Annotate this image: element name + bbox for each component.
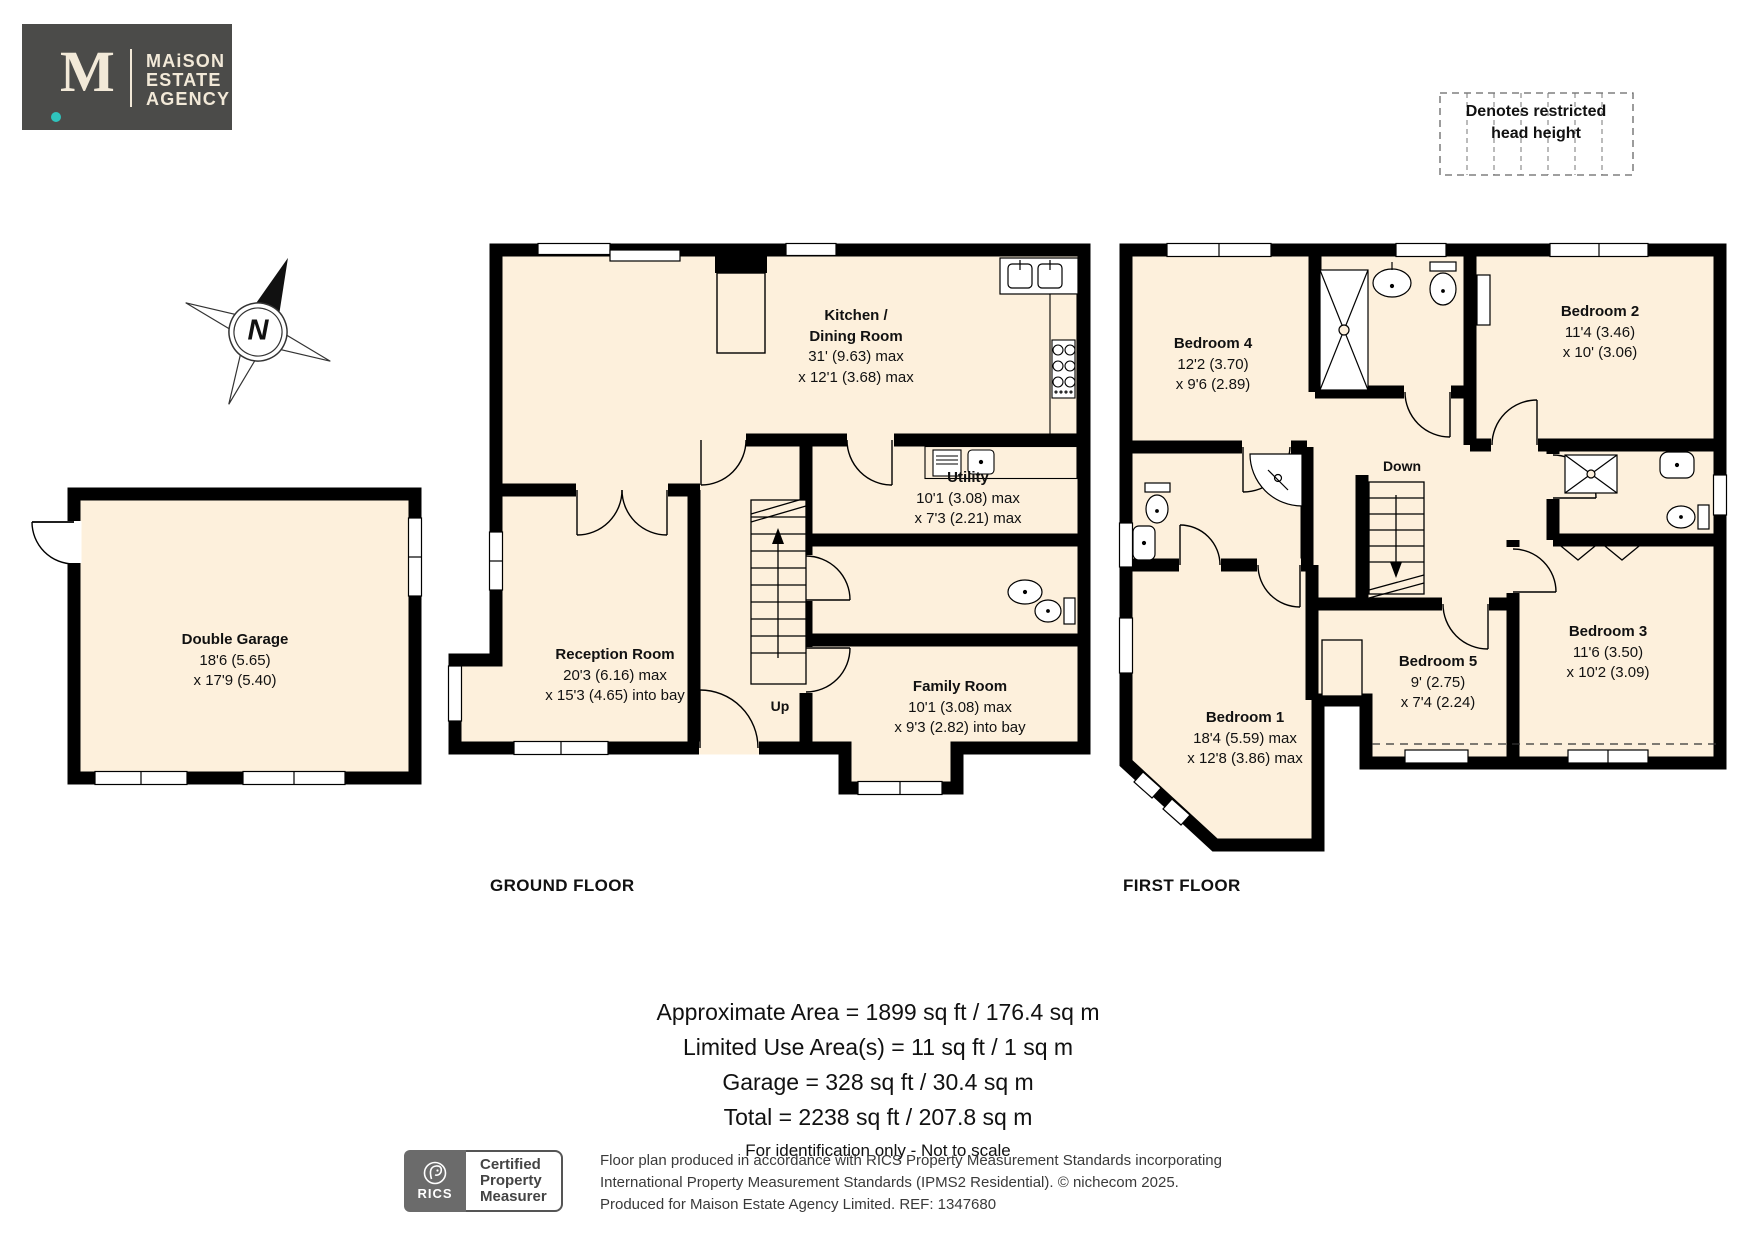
room-label-bedroom5: Bedroom 5 9' (2.75) x 7'4 (2.24) bbox=[1399, 652, 1477, 714]
fine-print: Floor plan produced in accordance with R… bbox=[600, 1150, 1222, 1216]
first-floor-caption: FIRST FLOOR bbox=[1123, 876, 1241, 896]
total-area: Total = 2238 sq ft / 207.8 sq m bbox=[656, 1100, 1099, 1135]
rics-lion-icon bbox=[422, 1161, 448, 1185]
cupboard bbox=[1322, 640, 1362, 696]
stairs-up-label: Up bbox=[771, 698, 790, 714]
stairs-up bbox=[751, 498, 806, 684]
agency-logo: M MAiSON ESTATE AGENCY bbox=[22, 24, 232, 130]
ensuite-toilet-icon bbox=[1145, 483, 1170, 523]
shower-tray-icon bbox=[1565, 455, 1617, 493]
room-label-kitchen: Kitchen / Dining Room 31' (9.63) max x 1… bbox=[798, 306, 913, 388]
ground-floor-caption: GROUND FLOOR bbox=[490, 876, 635, 896]
stairs-down bbox=[1369, 482, 1424, 598]
bathroom2-sink-icon bbox=[1660, 452, 1694, 478]
floorplan-page: M MAiSON ESTATE AGENCY Denotes restricte… bbox=[0, 0, 1755, 1241]
kitchen-sink-icon bbox=[1000, 258, 1078, 294]
approximate-area: Approximate Area = 1899 sq ft / 176.4 sq… bbox=[656, 995, 1099, 1030]
rics-badge: RICS Certified Property Measurer bbox=[404, 1150, 563, 1212]
area-summary: Approximate Area = 1899 sq ft / 176.4 sq… bbox=[656, 995, 1099, 1161]
hob-icon bbox=[1050, 294, 1077, 434]
bathroom2-toilet-icon bbox=[1667, 505, 1709, 529]
room-label-reception: Reception Room 20'3 (6.16) max x 15'3 (4… bbox=[545, 645, 685, 707]
room-label-bedroom2: Bedroom 2 11'4 (3.46) x 10' (3.06) bbox=[1561, 302, 1639, 364]
limited-use-area: Limited Use Area(s) = 11 sq ft / 1 sq m bbox=[656, 1030, 1099, 1065]
logo-divider bbox=[130, 49, 132, 107]
room-label-utility: Utility 10'1 (3.08) max x 7'3 (2.21) max bbox=[914, 468, 1021, 530]
logo-name: MAiSON ESTATE AGENCY bbox=[146, 52, 230, 109]
shower-icon bbox=[1320, 270, 1368, 390]
compass-north-label: N bbox=[248, 315, 269, 348]
room-label-garage: Double Garage 18'6 (5.65) x 17'9 (5.40) bbox=[182, 630, 289, 692]
room-label-bedroom4: Bedroom 4 12'2 (3.70) x 9'6 (2.89) bbox=[1174, 334, 1252, 396]
wc-sink-icon bbox=[1008, 580, 1042, 604]
chimney-breast bbox=[715, 255, 767, 353]
restricted-height-legend: Denotes restricted head height bbox=[1466, 101, 1607, 145]
certified-property-measurer: Certified Property Measurer bbox=[466, 1150, 563, 1212]
logo-dot-icon bbox=[51, 112, 61, 122]
room-label-bedroom3: Bedroom 3 11'6 (3.50) x 10'2 (3.09) bbox=[1567, 622, 1650, 684]
stairs-down-label: Down bbox=[1383, 458, 1421, 474]
logo-monogram: M bbox=[60, 38, 115, 105]
rics-logo: RICS bbox=[404, 1150, 466, 1212]
bathroom-toilet-icon bbox=[1430, 262, 1456, 305]
wc-toilet-icon bbox=[1035, 598, 1075, 624]
room-label-family: Family Room 10'1 (3.08) max x 9'3 (2.82)… bbox=[894, 677, 1025, 739]
garage-area: Garage = 328 sq ft / 30.4 sq m bbox=[656, 1065, 1099, 1100]
room-label-bedroom1: Bedroom 1 18'4 (5.59) max x 12'8 (3.86) … bbox=[1187, 708, 1302, 770]
ensuite-sink-icon bbox=[1133, 526, 1155, 560]
